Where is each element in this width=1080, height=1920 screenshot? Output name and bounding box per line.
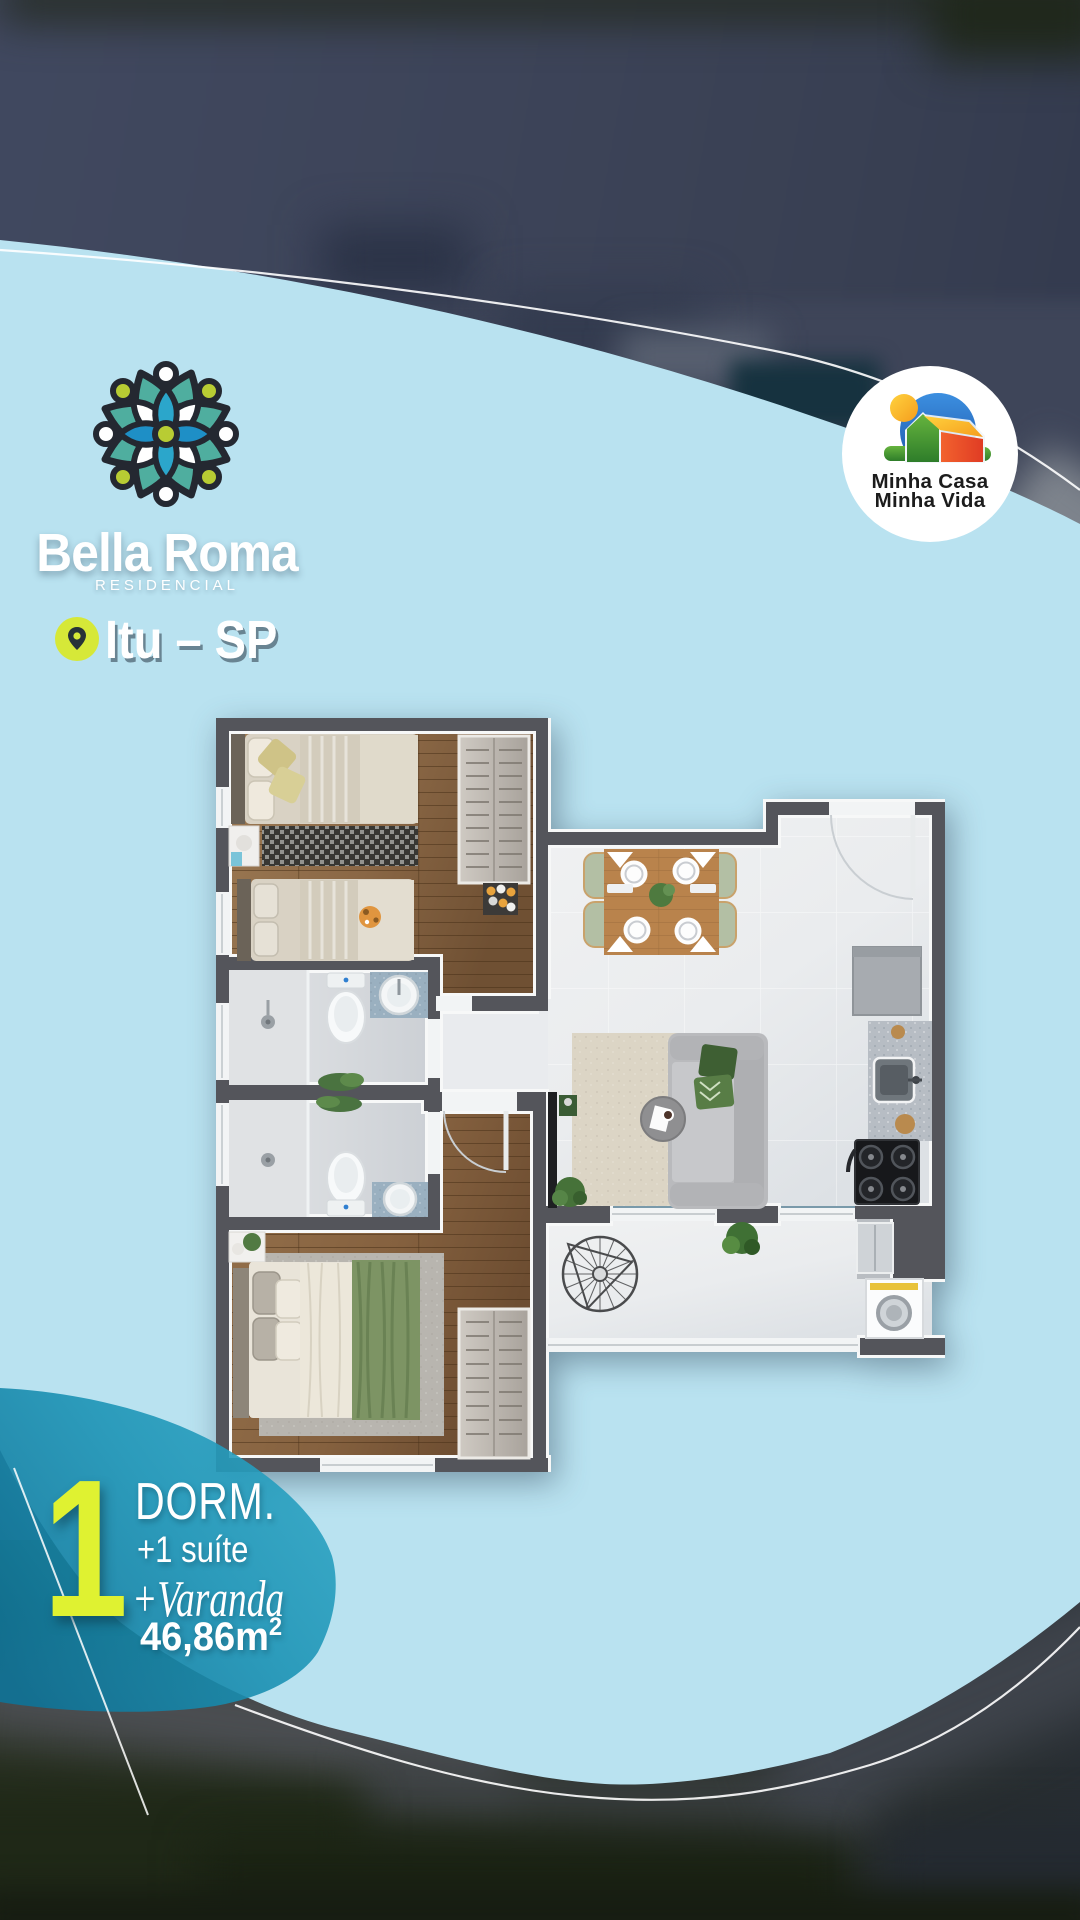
svg-text:Minha Vida: Minha Vida xyxy=(875,489,986,512)
